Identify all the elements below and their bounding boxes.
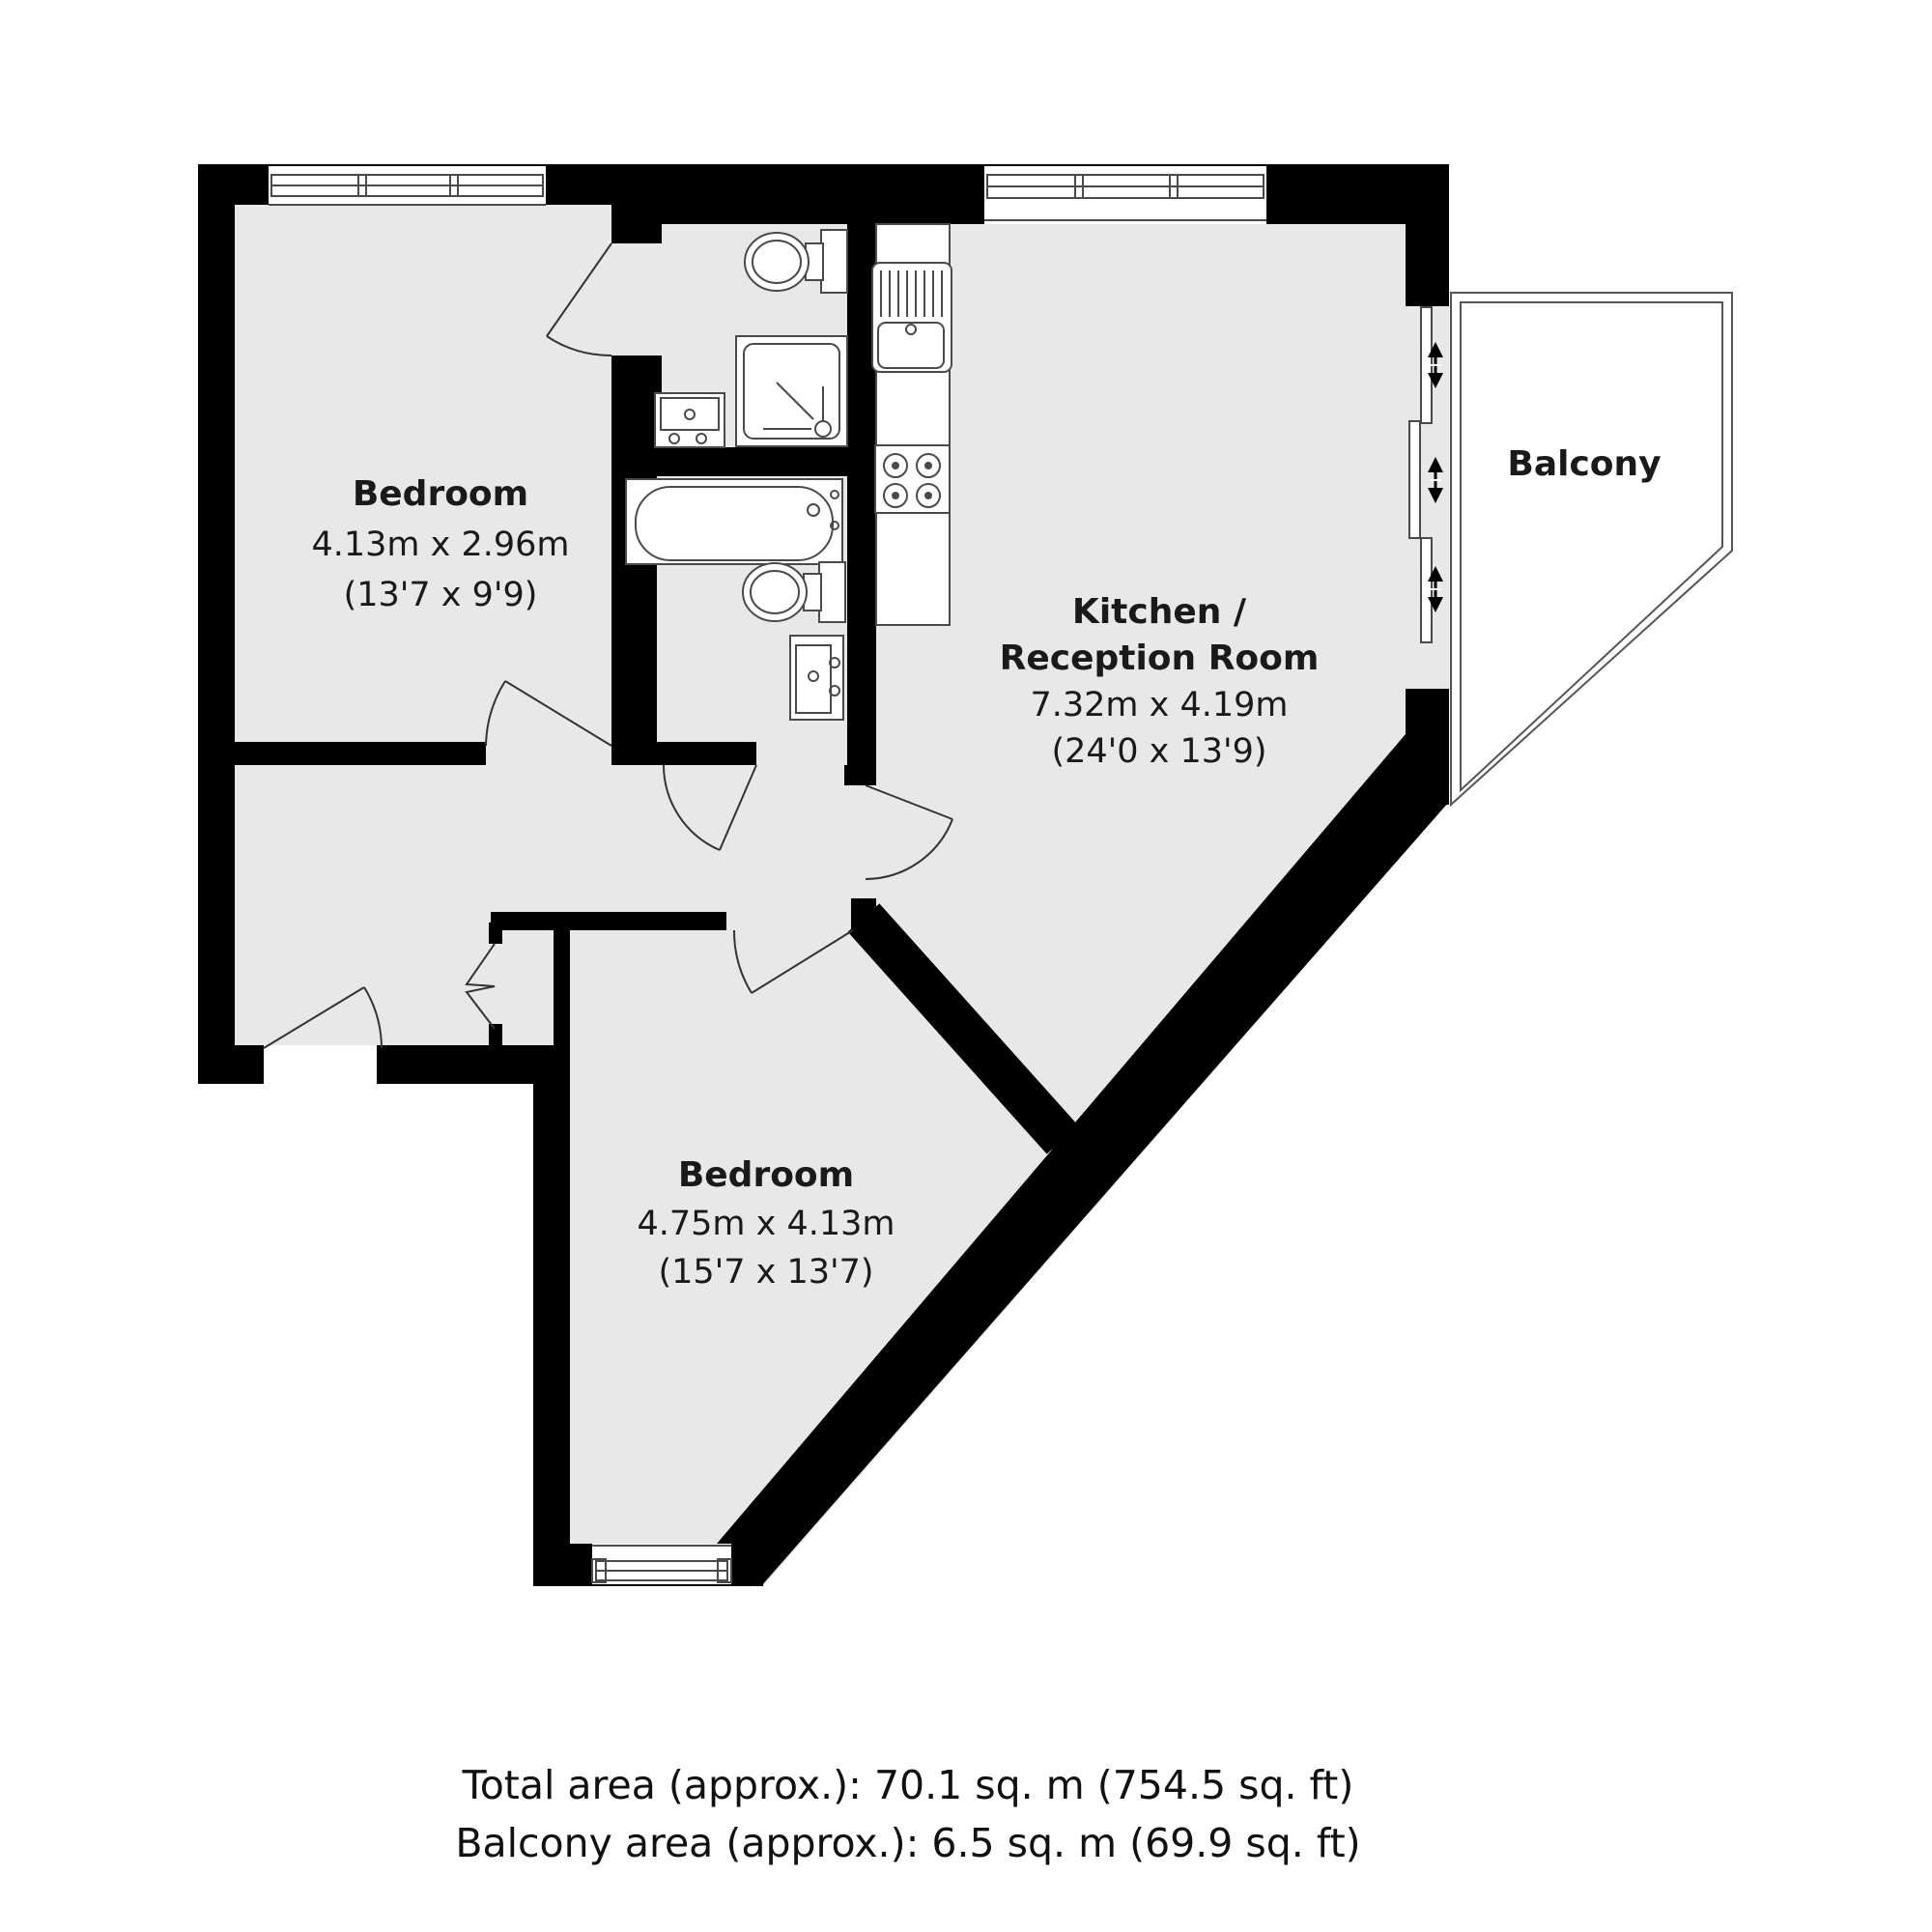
kitchen-dim-imperial: (24'0 x 13'9) xyxy=(1051,732,1266,771)
window-bedroom-2 xyxy=(592,1544,731,1584)
kitchen-sink-icon xyxy=(872,263,952,372)
sink-icon-ensuite xyxy=(655,393,724,447)
bedroom1-label: Bedroom xyxy=(353,474,528,514)
bedroom2-dim-imperial: (15'7 x 13'7) xyxy=(658,1253,873,1292)
bedroom1-dim-imperial: (13'7 x 9'9) xyxy=(344,576,538,614)
bedroom2-label: Bedroom xyxy=(678,1155,854,1195)
balcony-area-text: Balcony area (approx.): 6.5 sq. m (69.9 … xyxy=(455,1820,1360,1866)
balcony-label: Balcony xyxy=(1507,444,1661,484)
hob-icon xyxy=(875,445,950,513)
bedroom2-dim-metric: 4.75m x 4.13m xyxy=(637,1205,895,1243)
window-bedroom-1 xyxy=(269,166,546,205)
front-door-opening xyxy=(264,1045,377,1084)
kitchen-label-line1: Kitchen / xyxy=(1072,592,1247,632)
kitchen-dim-metric: 7.32m x 4.19m xyxy=(1030,686,1288,724)
shower-icon xyxy=(736,336,847,446)
bedroom1-dim-metric: 4.13m x 2.96m xyxy=(311,526,569,564)
window-kitchen xyxy=(984,166,1266,224)
footer-area-text: Total area (approx.): 70.1 sq. m (754.5 … xyxy=(455,1762,1360,1866)
balcony-railing xyxy=(1451,293,1732,805)
total-area-text: Total area (approx.): 70.1 sq. m (754.5 … xyxy=(462,1762,1354,1808)
floor-plan-page: Bedroom 4.13m x 2.96m (13'7 x 9'9) Kitch… xyxy=(0,0,1932,1932)
floor-plan-drawing: Bedroom 4.13m x 2.96m (13'7 x 9'9) Kitch… xyxy=(0,0,1932,1932)
toilet-icon-bathroom xyxy=(743,562,845,622)
kitchen-label-line2: Reception Room xyxy=(1000,639,1320,678)
toilet-icon-ensuite xyxy=(745,230,847,293)
bath-icon xyxy=(626,479,842,564)
sink-icon-bathroom xyxy=(790,636,843,720)
